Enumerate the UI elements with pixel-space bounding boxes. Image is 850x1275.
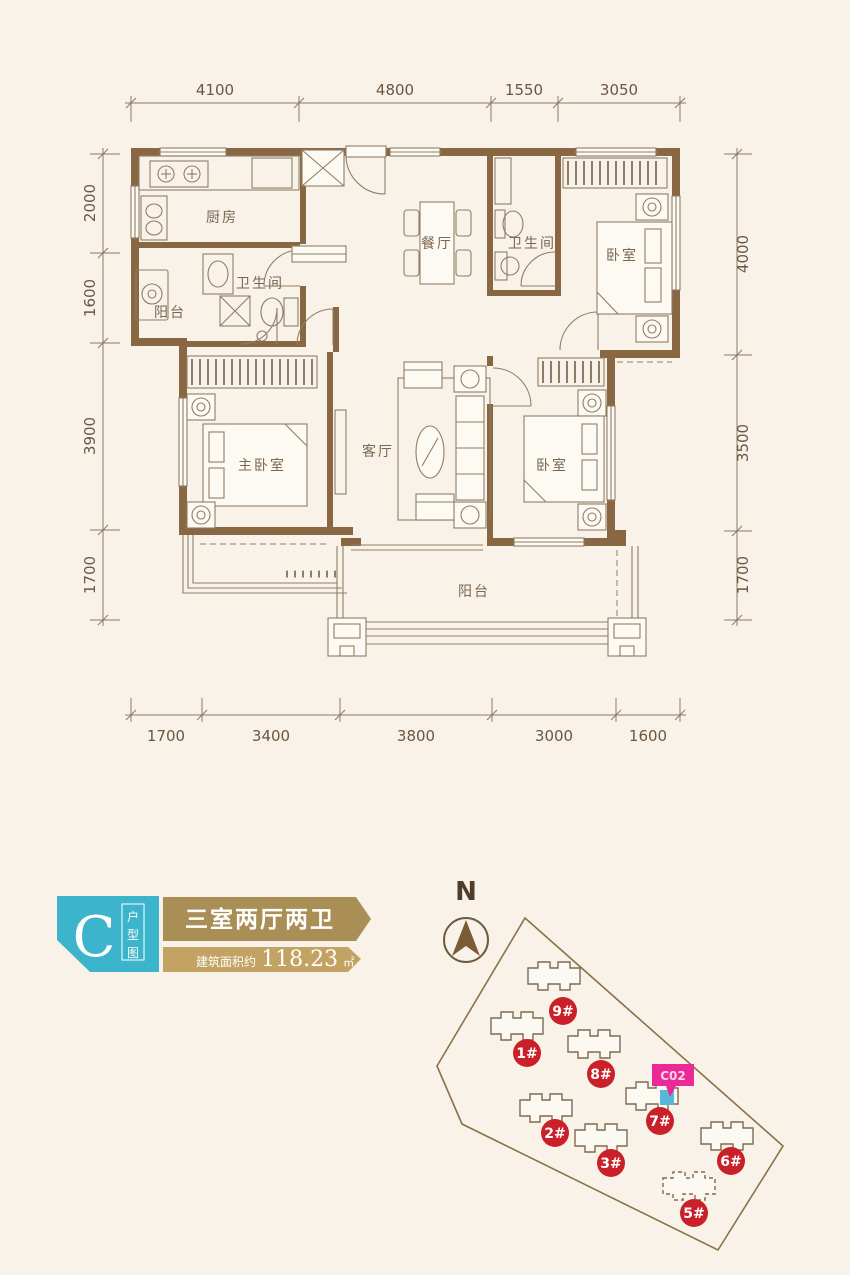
dim-label: 4800 xyxy=(376,81,414,99)
building-badge-label: 9# xyxy=(552,1004,573,1020)
unit-area-unit: ㎡ xyxy=(343,956,354,969)
compass-icon xyxy=(444,918,488,962)
room-label-dining: 餐厅 xyxy=(421,236,453,252)
building-9: 9# xyxy=(528,962,580,1025)
dim-label: 3050 xyxy=(600,81,638,99)
furniture-living xyxy=(335,362,490,528)
dim-label: 4000 xyxy=(734,235,752,273)
dimension-right: 4000 3500 1700 xyxy=(724,148,752,626)
building-badge-label: 6# xyxy=(720,1154,741,1170)
room-label-living: 客厅 xyxy=(362,443,394,460)
building-badge-label: 2# xyxy=(544,1126,565,1142)
unit-tag-char: 型 xyxy=(127,928,139,942)
unit-badge: C 户 型 图 三室两厅两卫 建筑面积约 118.23 ㎡ xyxy=(57,896,371,972)
building-6: 6# xyxy=(701,1122,753,1175)
unit-letter: C xyxy=(73,905,116,970)
room-label-balcony-main: 阳台 xyxy=(458,584,490,600)
unit-tag-char: 图 xyxy=(127,946,139,960)
furniture-bedroom-right xyxy=(524,358,606,530)
dimension-top: 4100 4800 1550 3050 xyxy=(125,81,686,122)
building-5: 5# xyxy=(663,1172,715,1227)
dim-label: 4100 xyxy=(196,81,234,99)
dim-label: 1600 xyxy=(81,279,99,317)
dim-label: 3500 xyxy=(734,424,752,462)
dimension-bottom: 1700 3400 3800 3000 1600 xyxy=(125,698,686,745)
building-8: 8# xyxy=(568,1030,620,1088)
building-badge-label: 8# xyxy=(590,1067,611,1083)
building-3: 3# xyxy=(575,1124,627,1177)
dim-label: 3800 xyxy=(397,727,435,745)
furniture-master-bedroom xyxy=(187,356,317,528)
unit-area-value: 118.23 xyxy=(261,947,338,972)
room-label-bath-guest: 卫生间 xyxy=(508,236,556,252)
dim-label: 1550 xyxy=(505,81,543,99)
site-plan: N 9# 1# 8# C02 7# xyxy=(437,877,783,1250)
room-label-kitchen: 厨房 xyxy=(206,210,238,226)
building-1: 1# xyxy=(491,1012,543,1067)
furniture-bath-guest xyxy=(495,158,523,280)
unit-title: 三室两厅两卫 xyxy=(185,906,335,933)
room-label-master-bedroom: 主卧室 xyxy=(238,457,286,474)
floorplan-canvas: 4100 4800 1550 3050 1700 3400 3800 3000 … xyxy=(0,0,850,1275)
dim-label: 3400 xyxy=(252,727,290,745)
unit-tag-char: 户 xyxy=(127,909,139,924)
dim-label: 3000 xyxy=(535,727,573,745)
building-badge-label: 7# xyxy=(649,1114,670,1130)
dim-label: 1600 xyxy=(629,727,667,745)
room-label-bedroom-top: 卧室 xyxy=(606,247,638,264)
building-7: C02 7# xyxy=(626,1064,694,1135)
dim-label: 3900 xyxy=(81,417,99,455)
furniture-bath-main xyxy=(203,254,298,341)
building-2: 2# xyxy=(520,1094,572,1147)
dim-label: 1700 xyxy=(147,727,185,745)
north-label: N xyxy=(455,877,477,907)
dimension-left: 2000 1600 3900 1700 xyxy=(81,148,120,626)
building-badge-label: 3# xyxy=(600,1156,621,1172)
floorplan-page: 4100 4800 1550 3050 1700 3400 3800 3000 … xyxy=(0,0,850,1275)
dim-label: 1700 xyxy=(81,556,99,594)
room-label-bedroom-right: 卧室 xyxy=(536,457,568,474)
highlight-label: C02 xyxy=(660,1069,686,1083)
dim-label: 2000 xyxy=(81,184,99,222)
dim-label: 1700 xyxy=(734,556,752,594)
room-label-bath-main: 卫生间 xyxy=(236,276,284,292)
room-label-balcony-side: 阳台 xyxy=(154,305,186,321)
building-badge-label: 1# xyxy=(516,1046,537,1062)
building-badge-label: 5# xyxy=(683,1206,704,1222)
floor-plan: 4100 4800 1550 3050 1700 3400 3800 3000 … xyxy=(81,81,752,745)
unit-area-prefix: 建筑面积约 xyxy=(196,954,256,969)
